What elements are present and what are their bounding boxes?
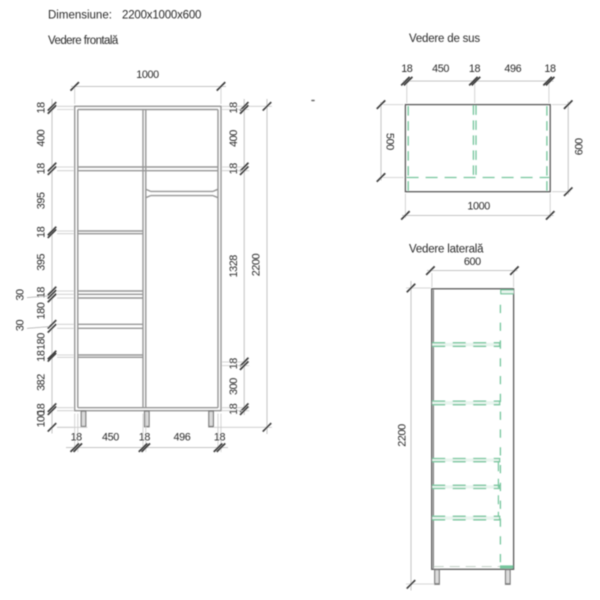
svg-text:2200: 2200 (251, 253, 263, 276)
svg-text:Vedere laterală: Vedere laterală (409, 243, 484, 255)
svg-text:395: 395 (36, 254, 48, 271)
svg-text:300: 300 (228, 378, 240, 395)
svg-text:18: 18 (544, 63, 556, 75)
svg-text:18: 18 (228, 102, 240, 114)
svg-text:2200: 2200 (397, 424, 409, 447)
svg-text:100: 100 (36, 410, 48, 427)
svg-text:600: 600 (464, 256, 481, 268)
svg-text:600: 600 (573, 138, 585, 155)
svg-text:18: 18 (36, 350, 48, 362)
svg-text:450: 450 (432, 63, 449, 75)
svg-text:18: 18 (36, 226, 48, 238)
svg-text:1328: 1328 (228, 255, 240, 278)
svg-text:Vedere frontală: Vedere frontală (48, 35, 119, 47)
svg-text:400: 400 (36, 129, 48, 146)
svg-text:1000: 1000 (136, 69, 159, 81)
svg-text:18: 18 (214, 432, 226, 444)
svg-text:450: 450 (102, 432, 119, 444)
svg-text:30: 30 (15, 320, 27, 332)
svg-text:500: 500 (384, 133, 396, 150)
svg-text:180: 180 (36, 333, 48, 350)
svg-text:2200x1000x600: 2200x1000x600 (122, 10, 201, 22)
svg-text:395: 395 (36, 192, 48, 209)
svg-text:496: 496 (504, 63, 521, 75)
svg-text:18: 18 (228, 358, 240, 370)
svg-text:180: 180 (36, 302, 48, 319)
svg-text:382: 382 (36, 374, 48, 391)
svg-text:Vedere de sus: Vedere de sus (409, 33, 480, 45)
svg-text:18: 18 (401, 63, 413, 75)
svg-text:496: 496 (173, 432, 190, 444)
svg-text:18: 18 (36, 163, 48, 175)
svg-text:400: 400 (228, 130, 240, 147)
svg-text:1000: 1000 (467, 201, 490, 213)
svg-text:18: 18 (228, 403, 240, 415)
svg-text:Dimensiune:: Dimensiune: (48, 10, 112, 22)
svg-text:18: 18 (469, 63, 481, 75)
svg-text:18: 18 (228, 163, 240, 175)
svg-text:18: 18 (36, 102, 48, 114)
svg-text:18: 18 (71, 432, 83, 444)
svg-text:18: 18 (139, 432, 151, 444)
svg-text:30: 30 (15, 289, 27, 301)
